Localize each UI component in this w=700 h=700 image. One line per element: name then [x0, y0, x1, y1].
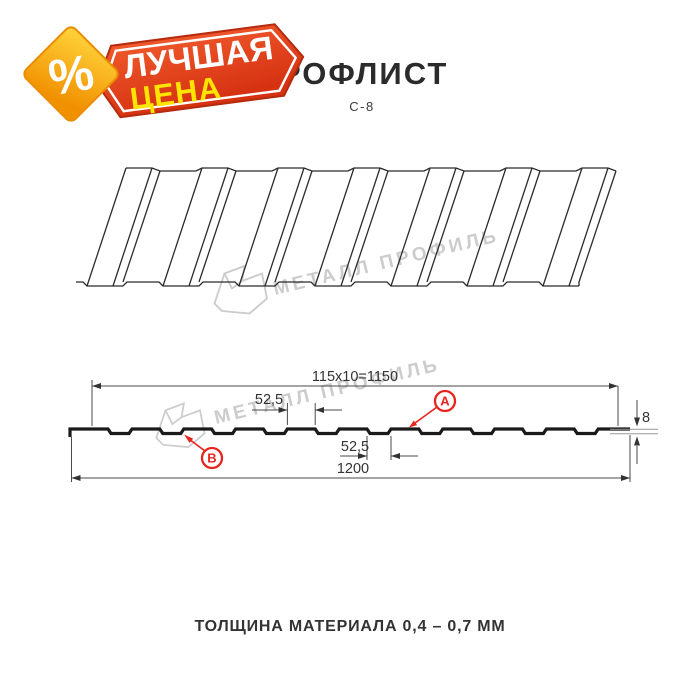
sheet-right-edge [579, 171, 616, 286]
dim-overall-width-label: 1200 [337, 461, 369, 477]
poster: ПРОФЛИСТ С-8 ЛУЧШАЯ ЦЕНА % МЕТАЛЛ ПРОФ [0, 0, 700, 700]
profile-outline [70, 429, 630, 437]
badge-banner: ЛУЧШАЯ ЦЕНА [92, 21, 308, 121]
dim-working-width-label: 115x10=1150 [312, 369, 398, 385]
callout-b: B [184, 435, 222, 469]
cross-section-diagram: МЕТАЛЛ ПРОФИЛЬ 115x10=1150 52,5 [40, 360, 680, 500]
rib-lines [87, 168, 608, 286]
watermark-brand-text: МЕТАЛЛ ПРОФИЛЬ [271, 225, 501, 299]
dim-rib-bottom-label: 52,5 [341, 439, 369, 455]
dim-rib-bottom: 52,5 [340, 436, 418, 460]
best-price-badge: ЛУЧШАЯ ЦЕНА % [8, 8, 328, 140]
callout-a: A [409, 391, 455, 428]
callout-a-label: A [440, 394, 450, 409]
metall-profil-logo-icon [215, 266, 268, 314]
dim-profile-height-label: 8 [642, 410, 650, 426]
watermark-2: МЕТАЛЛ ПРОФИЛЬ [156, 360, 442, 447]
dim-working-width: 115x10=1150 [92, 369, 618, 426]
percent-diamond: % [22, 25, 121, 124]
watermark-1: МЕТАЛЛ ПРОФИЛЬ [215, 225, 502, 313]
dim-profile-height: 8 [610, 400, 658, 464]
callout-b-label: B [207, 451, 216, 466]
profile-3d-illustration: МЕТАЛЛ ПРОФИЛЬ [60, 145, 620, 315]
sheet-top-edge [126, 168, 616, 171]
material-thickness-note: ТОЛЩИНА МАТЕРИАЛА 0,4 – 0,7 ММ [0, 618, 700, 636]
dim-rib-top-label: 52,5 [255, 392, 283, 408]
metall-profil-logo-icon [156, 403, 204, 447]
